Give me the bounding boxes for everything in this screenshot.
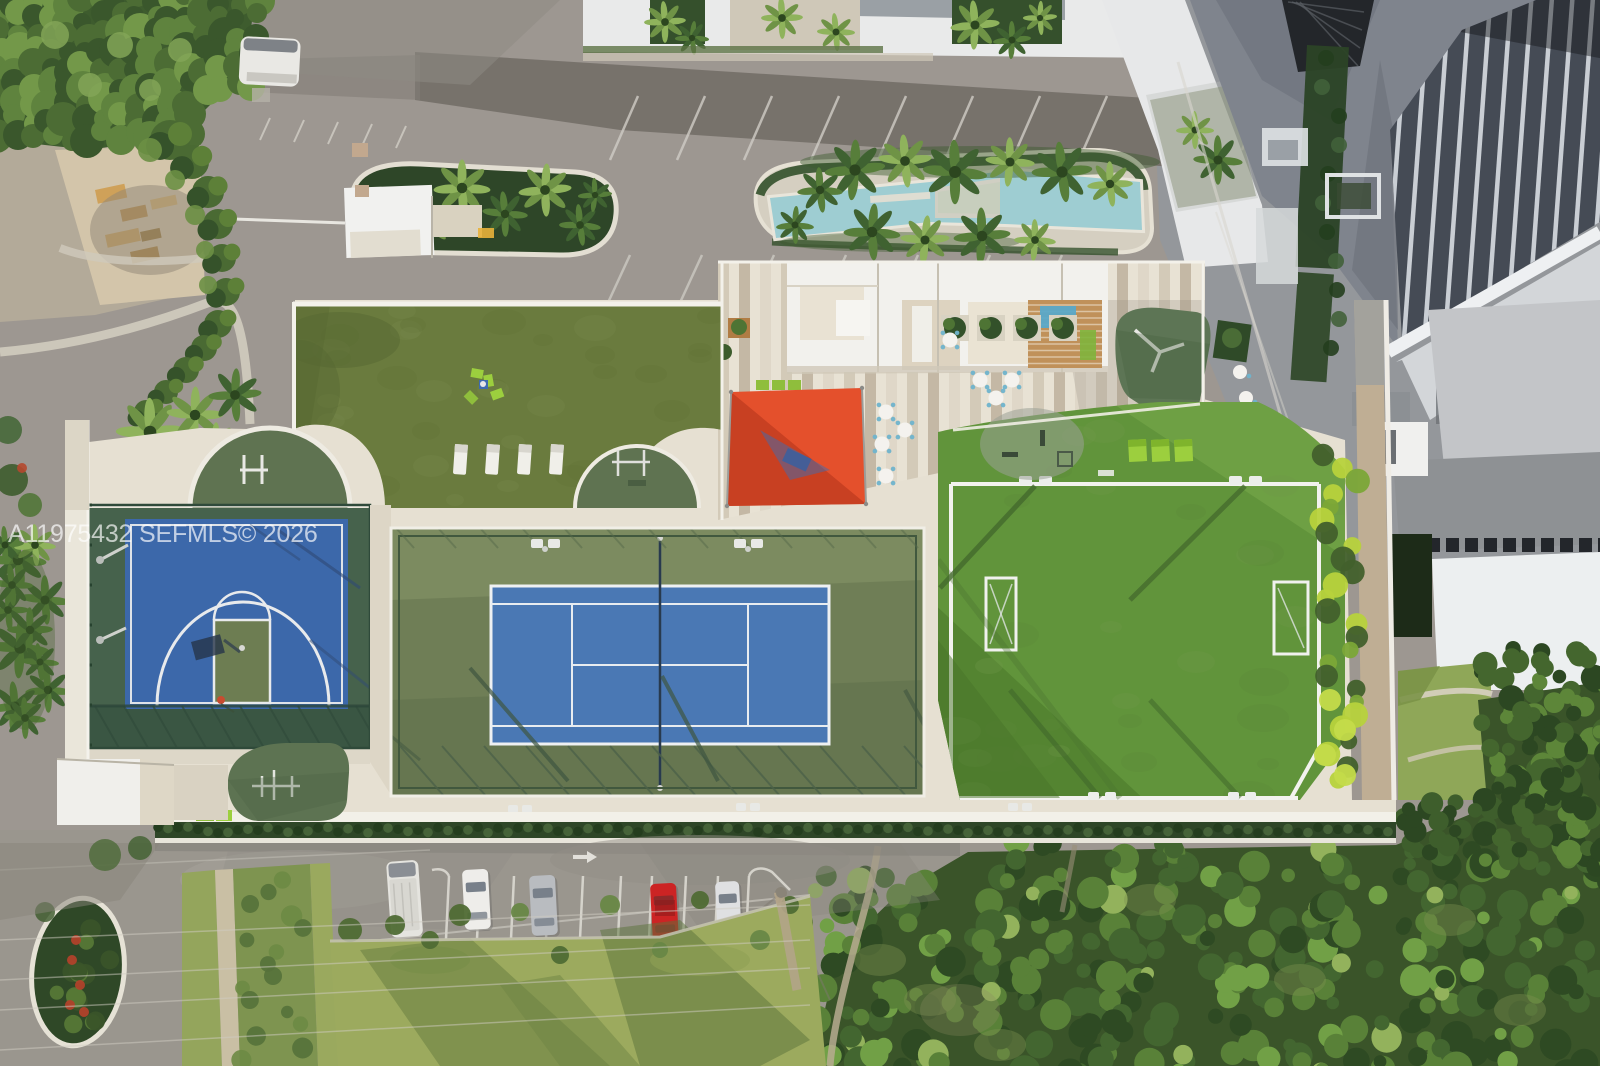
svg-text:A11975432 SEFMLS© 2026: A11975432 SEFMLS© 2026 <box>8 520 318 548</box>
